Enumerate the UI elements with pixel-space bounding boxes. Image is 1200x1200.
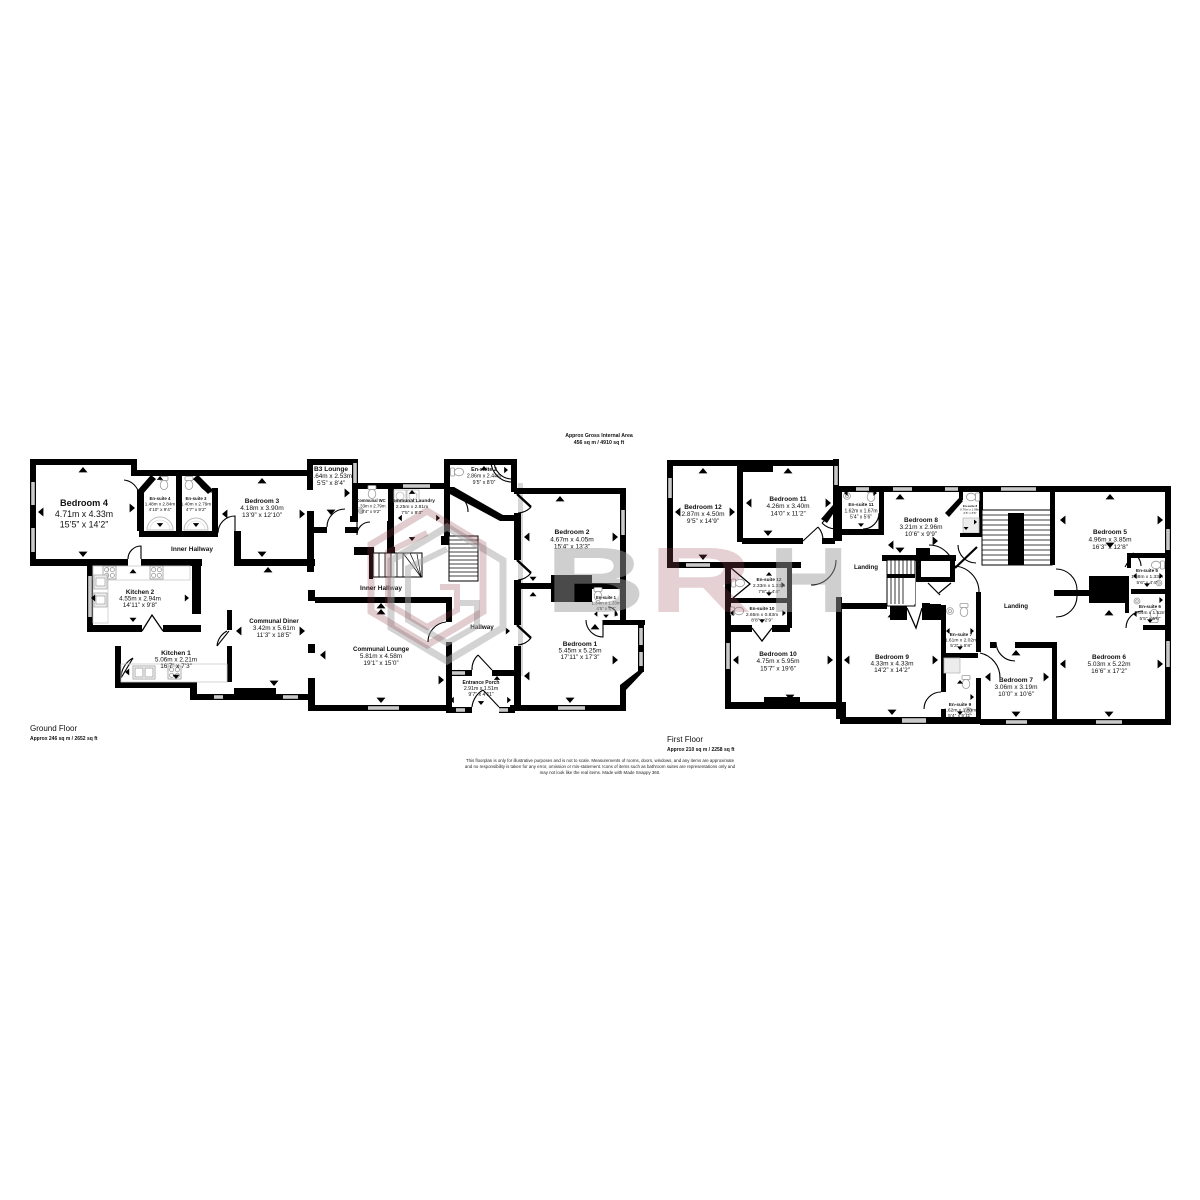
svg-text:9’7” x 4’11”: 9’7” x 4’11”: [468, 692, 494, 698]
svg-text:14’0” x 11’2”: 14’0” x 11’2”: [770, 510, 805, 517]
svg-text:Inner Hallway: Inner Hallway: [360, 585, 402, 592]
svg-text:Landing: Landing: [854, 564, 878, 571]
svg-text:En-suite 5: En-suite 5: [1136, 568, 1158, 573]
svg-text:1.64m x 1.52m: 1.64m x 1.52m: [1134, 610, 1166, 616]
svg-text:9’5” x 8’0”: 9’5” x 8’0”: [473, 480, 496, 486]
svg-text:9’5” x 14’9”: 9’5” x 14’9”: [687, 518, 719, 525]
svg-text:Communal Laundry: Communal Laundry: [389, 498, 435, 504]
svg-text:Inner Hallway: Inner Hallway: [171, 546, 213, 553]
svg-text:Bedroom 11: Bedroom 11: [769, 496, 807, 503]
svg-text:2’6” x 6’6”: 2’6” x 6’6”: [963, 511, 976, 515]
svg-text:Bedroom 6: Bedroom 6: [1092, 654, 1126, 661]
svg-text:11’3” x 18’5”: 11’3” x 18’5”: [257, 632, 292, 639]
svg-text:15’7” x 19’6”: 15’7” x 19’6”: [760, 665, 796, 672]
svg-text:4’4” x 9’2”: 4’4” x 9’2”: [361, 509, 381, 514]
svg-text:Ground Floor: Ground Floor: [30, 724, 77, 733]
svg-text:1.40m x 2.79m: 1.40m x 2.79m: [181, 502, 212, 507]
svg-text:En-suite 9: En-suite 9: [949, 702, 972, 707]
svg-text:and no responsibility is taken: and no responsibility is taken for any e…: [465, 764, 736, 769]
svg-text:4.26m x 3.40m: 4.26m x 3.40m: [767, 503, 810, 510]
svg-text:Bedroom 5: Bedroom 5: [1093, 529, 1127, 536]
svg-text:16’6” x 17’2”: 16’6” x 17’2”: [1091, 668, 1127, 675]
svg-text:16’7” x 7’3”: 16’7” x 7’3”: [160, 663, 192, 670]
svg-text:5’4” x 5’6”: 5’4” x 5’6”: [850, 515, 872, 521]
svg-text:2.25m x 2.81m: 2.25m x 2.81m: [396, 504, 428, 510]
svg-text:5.03m x 5.22m: 5.03m x 5.22m: [1088, 661, 1131, 668]
svg-text:Bedroom 3: Bedroom 3: [245, 498, 280, 505]
svg-text:4.18m x 3.90m: 4.18m x 3.90m: [240, 505, 284, 512]
svg-text:456 sq m / 4910 sq ft: 456 sq m / 4910 sq ft: [574, 440, 625, 446]
svg-text:B3 Lounge: B3 Lounge: [314, 466, 348, 473]
svg-text:2.87m x 4.50m: 2.87m x 4.50m: [682, 511, 725, 518]
svg-text:may not look like the real ite: may not look like the real items. Made w…: [540, 770, 661, 775]
svg-text:En-suite 7: En-suite 7: [950, 632, 973, 637]
svg-text:4.71m x 4.33m: 4.71m x 4.33m: [55, 509, 113, 519]
svg-text:4’10” x 9’4”: 4’10” x 9’4”: [149, 507, 172, 512]
svg-text:Bedroom 7: Bedroom 7: [999, 677, 1033, 684]
svg-text:2.86m x 2.44m: 2.86m x 2.44m: [467, 474, 501, 480]
svg-text:1.61m x 2.02m: 1.61m x 2.02m: [945, 638, 977, 644]
svg-text:H: H: [769, 527, 849, 632]
svg-text:En-suite 4: En-suite 4: [150, 496, 172, 501]
svg-text:10’6” x 9’9”: 10’6” x 9’9”: [905, 531, 937, 538]
svg-text:En-suite 11: En-suite 11: [848, 502, 874, 508]
svg-text:Approx 210 sq m / 2258 sq ft: Approx 210 sq m / 2258 sq ft: [667, 747, 735, 753]
svg-text:1.64m x 2.53m: 1.64m x 2.53m: [310, 473, 352, 480]
svg-text:Bedroom 4: Bedroom 4: [60, 498, 109, 508]
svg-text:Bedroom 10: Bedroom 10: [759, 651, 797, 658]
svg-text:En-suite 6: En-suite 6: [1139, 604, 1161, 609]
svg-text:15’5” x 14’2”: 15’5” x 14’2”: [60, 520, 108, 530]
svg-text:14’11” x 9’8”: 14’11” x 9’8”: [123, 602, 157, 609]
svg-text:19’1” x 15’0”: 19’1” x 15’0”: [363, 660, 398, 667]
svg-text:Bedroom 8: Bedroom 8: [904, 517, 938, 524]
svg-text:3.21m x 2.96m: 3.21m x 2.96m: [900, 524, 943, 531]
svg-text:10’0” x 10’6”: 10’0” x 10’6”: [998, 691, 1034, 698]
svg-text:B: B: [545, 529, 646, 633]
svg-text:4.75m x 5.95m: 4.75m x 5.95m: [757, 658, 800, 665]
svg-text:4.96m x 3.85m: 4.96m x 3.85m: [1089, 536, 1132, 543]
svg-text:1.33m x 2.79m: 1.33m x 2.79m: [356, 504, 385, 509]
svg-text:En-suite 3: En-suite 3: [186, 496, 208, 501]
svg-text:4’7” x 9’2”: 4’7” x 9’2”: [186, 507, 207, 512]
svg-text:3.06m x 3.19m: 3.06m x 3.19m: [995, 684, 1038, 691]
svg-text:1.62m x 1.67m: 1.62m x 1.67m: [844, 508, 877, 514]
svg-text:Landing: Landing: [1004, 603, 1028, 610]
svg-text:Approx 246 sq m / 2652 sq ft: Approx 246 sq m / 2652 sq ft: [30, 736, 98, 742]
svg-text:R: R: [649, 528, 752, 632]
svg-text:5’5” x 8’4”: 5’5” x 8’4”: [317, 480, 345, 487]
svg-text:Communal WC: Communal WC: [356, 498, 385, 503]
svg-text:14’2” x 14’2”: 14’2” x 14’2”: [874, 667, 910, 674]
svg-text:This floorplan is only for ill: This floorplan is only for illustrative …: [466, 758, 735, 763]
svg-text:17’11” x 17’3”: 17’11” x 17’3”: [561, 654, 600, 661]
svg-text:1.48m x 2.84m: 1.48m x 2.84m: [145, 502, 176, 507]
svg-text:First Floor: First Floor: [667, 735, 703, 744]
svg-text:Bedroom 12: Bedroom 12: [684, 504, 722, 511]
svg-text:Approx Gross Internal Area: Approx Gross Internal Area: [565, 433, 633, 439]
svg-text:13’9” x 12’10”: 13’9” x 12’10”: [242, 512, 282, 519]
